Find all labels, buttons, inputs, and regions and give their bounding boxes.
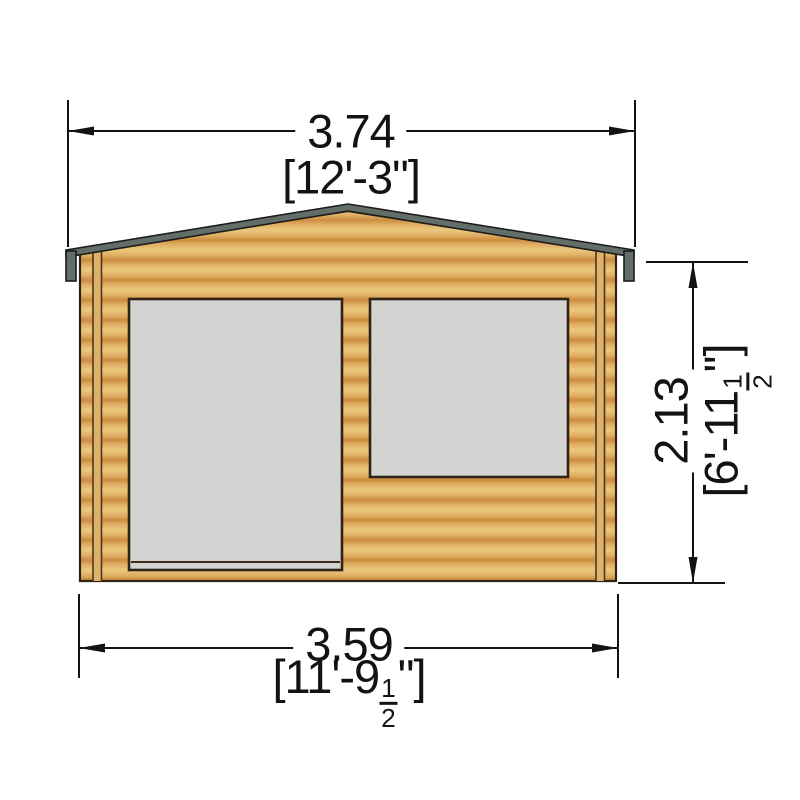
arrow-right-bottom	[689, 557, 698, 583]
dim-wall-height-fraction-numerator: 1	[719, 372, 749, 391]
dim-wall-height-metric: 2.13	[644, 369, 697, 472]
dim-wall-width-imperial-suffix: "]	[398, 650, 426, 703]
dim-roof-width-metric: 3.74	[295, 108, 406, 155]
corner-trim-left	[94, 250, 102, 581]
dim-wall-height-imperial-prefix: [6'-11	[694, 391, 747, 498]
door-panel	[129, 299, 342, 570]
dim-wall-height-fraction: 12	[719, 372, 776, 391]
arrow-top-left	[68, 127, 94, 136]
dim-wall-width-fraction: 12	[379, 675, 398, 732]
dim-wall-height-imperial-suffix: "]	[694, 344, 747, 372]
arrow-bottom-left	[79, 644, 105, 653]
dim-wall-height-label: 2.13 [6'-1112"]	[646, 344, 775, 497]
corner-trim-right	[597, 250, 605, 581]
arrow-bottom-right	[592, 644, 618, 653]
eave-end-cap-left	[66, 251, 76, 281]
cabin-front-elevation-drawing: 3.74 [12'-3"] 3.59 [11'-912"] 2.13 [6'-1…	[0, 0, 800, 800]
window-pane	[370, 299, 568, 477]
arrow-right-top	[689, 262, 698, 288]
dim-roof-width-imperial: [12'-3"]	[282, 154, 420, 201]
arrow-top-right	[609, 127, 635, 136]
dim-wall-height-imperial: [6'-1112"]	[696, 344, 775, 497]
dim-wall-height-fraction-denominator: 2	[749, 372, 776, 391]
dim-wall-width-imperial-prefix: [11'-9	[272, 650, 379, 703]
eave-end-cap-right	[624, 251, 634, 281]
dim-wall-width-fraction-numerator: 1	[379, 675, 398, 705]
dim-wall-width-fraction-denominator: 2	[379, 704, 398, 731]
dim-wall-width-imperial: [11'-912"]	[272, 653, 425, 731]
